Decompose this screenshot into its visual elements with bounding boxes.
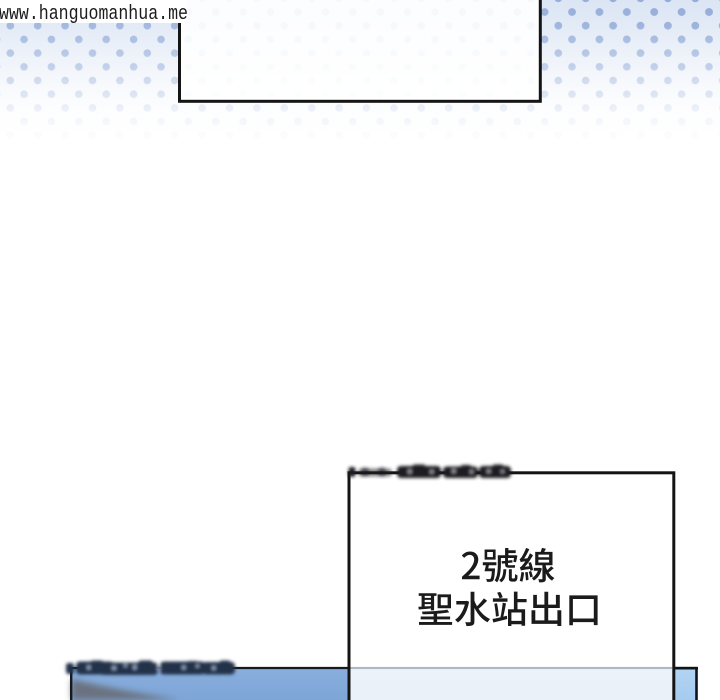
svg-text:www.hanguomanhua.me: www.hanguomanhua.me [0, 3, 188, 26]
